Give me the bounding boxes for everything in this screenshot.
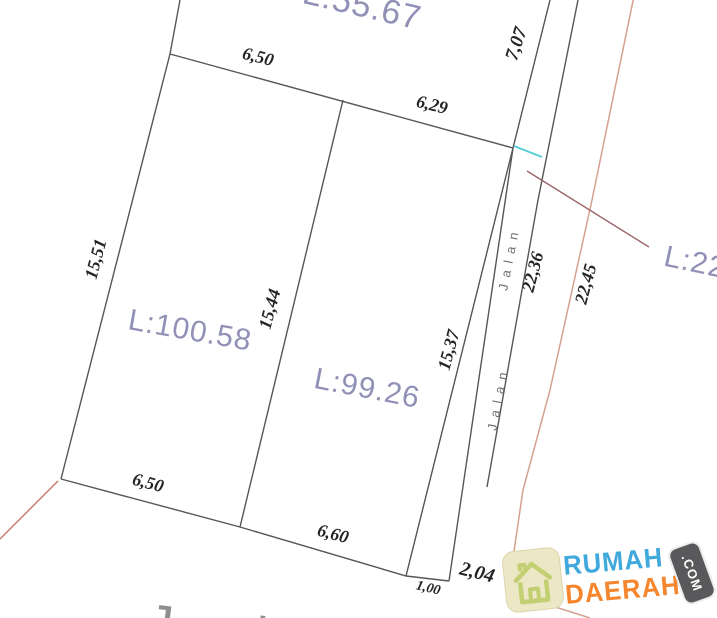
middle-divider-line xyxy=(240,100,343,527)
house-icon xyxy=(508,553,559,608)
top-boundary-line xyxy=(170,54,513,148)
cyan-tick xyxy=(514,146,542,157)
leader-line xyxy=(527,171,649,247)
bottom-boundary-line xyxy=(61,479,449,581)
watermark-badge-text: .COM xyxy=(678,553,705,594)
parcel-lines xyxy=(0,0,717,618)
site-plan-drawing: L:55.67 L:100.58 L:99.26 L:22 6,50 6,29 … xyxy=(0,0,717,618)
left-boundary-line xyxy=(61,0,180,479)
watermark-tile xyxy=(501,546,565,614)
neighbor-line-red xyxy=(0,481,58,539)
